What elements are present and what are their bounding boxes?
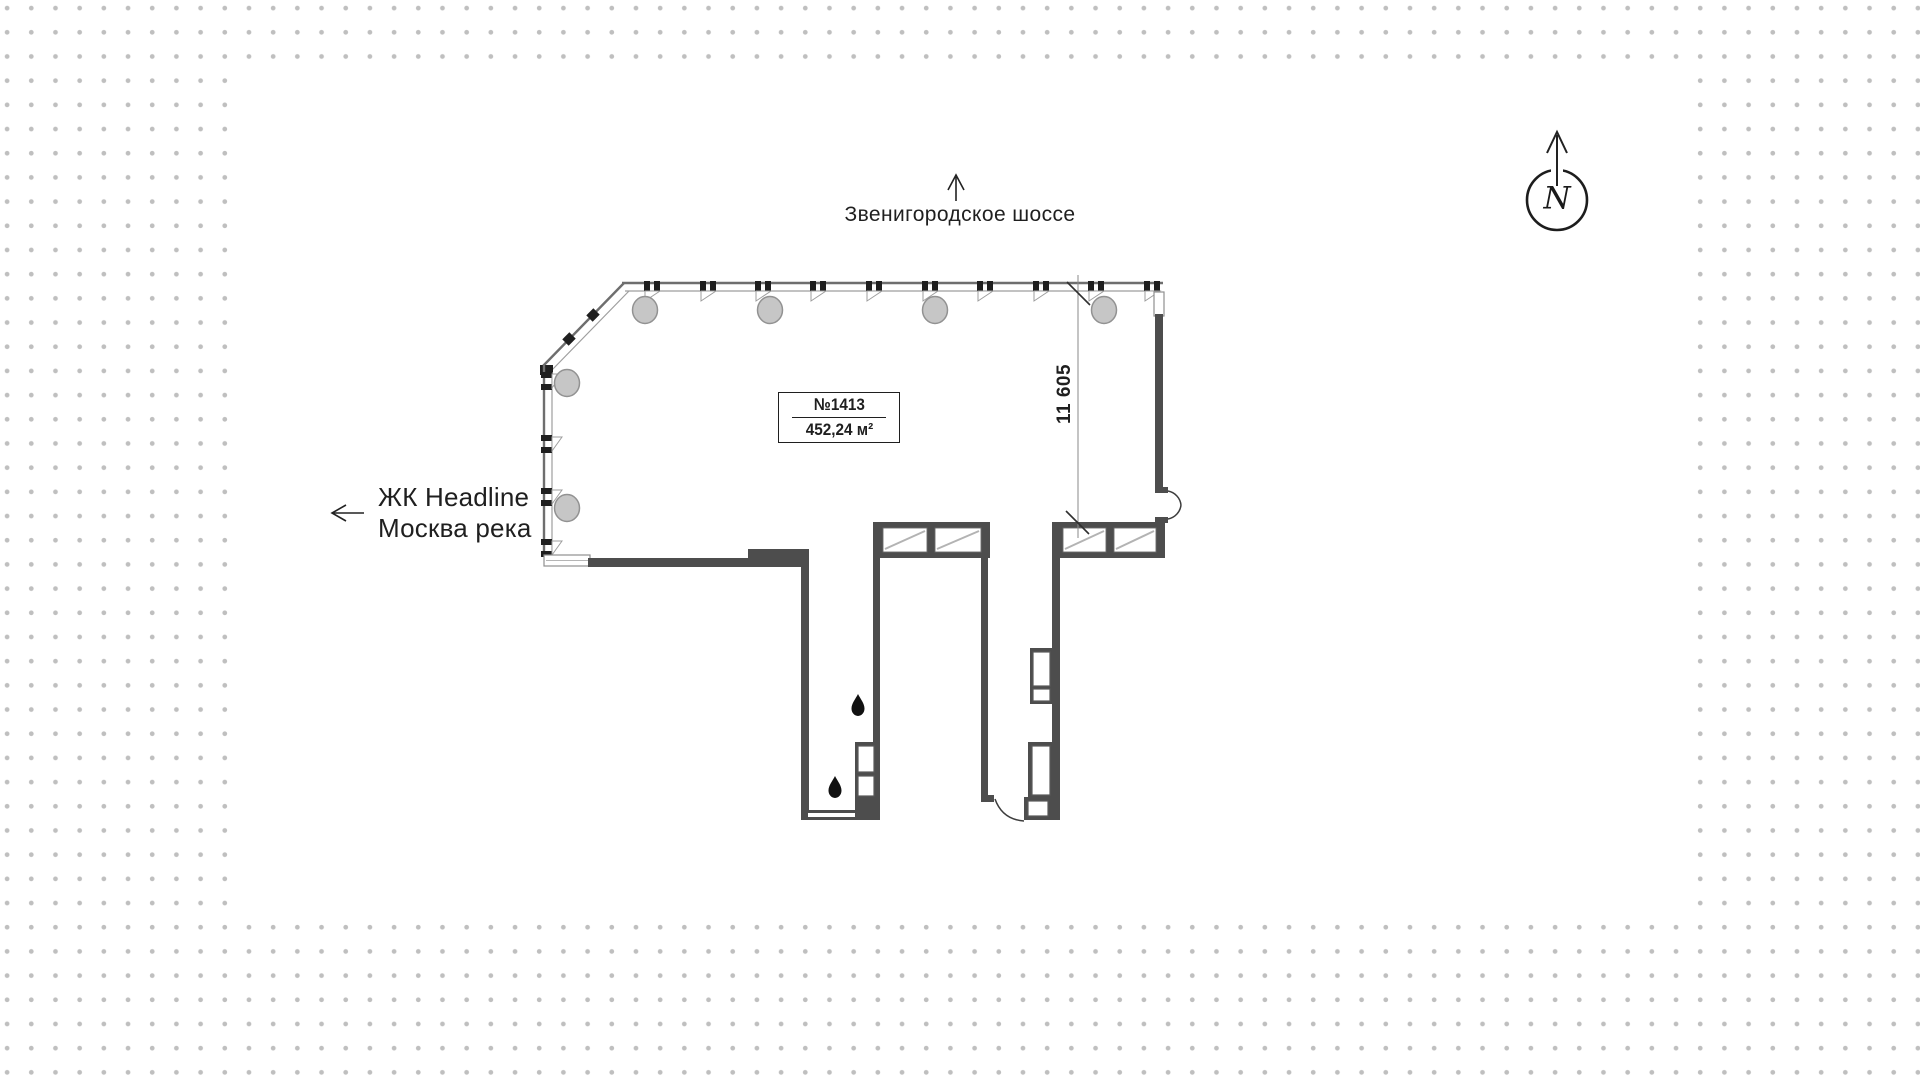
- compass-north-letter: N: [1543, 181, 1570, 217]
- unit-label-divider: [792, 417, 886, 418]
- page: { "colors": { "wall_dark": "#4d4d4d", "l…: [0, 0, 1920, 1078]
- window-wall-top: [622, 281, 1163, 301]
- dimension-value: 11 605: [1054, 364, 1076, 424]
- door-right-corridor: [995, 799, 1024, 821]
- west-arrow-icon: [332, 505, 364, 521]
- window-wall-diagonal: [540, 283, 629, 375]
- complex-label-line1: ЖК Headline: [378, 482, 532, 513]
- complex-label-line2: Москва река: [378, 513, 532, 544]
- north-arrow-icon: [948, 175, 964, 201]
- road-label: Звенигородское шоссе: [760, 203, 1160, 227]
- water-drop-icon: [852, 694, 865, 716]
- glazed-partition-right: [1052, 522, 1165, 558]
- unit-area: 452,24 м²: [805, 420, 872, 440]
- unit-number: №1413: [813, 395, 864, 415]
- water-drop-icon: [829, 776, 842, 798]
- unit-label-box: №1413 452,24 м²: [778, 392, 900, 443]
- door-right-wall: [1168, 491, 1181, 519]
- complex-label: ЖК Headline Москва река: [378, 482, 532, 544]
- floor-plan: [0, 0, 1920, 1078]
- glazed-partition-center: [873, 522, 990, 558]
